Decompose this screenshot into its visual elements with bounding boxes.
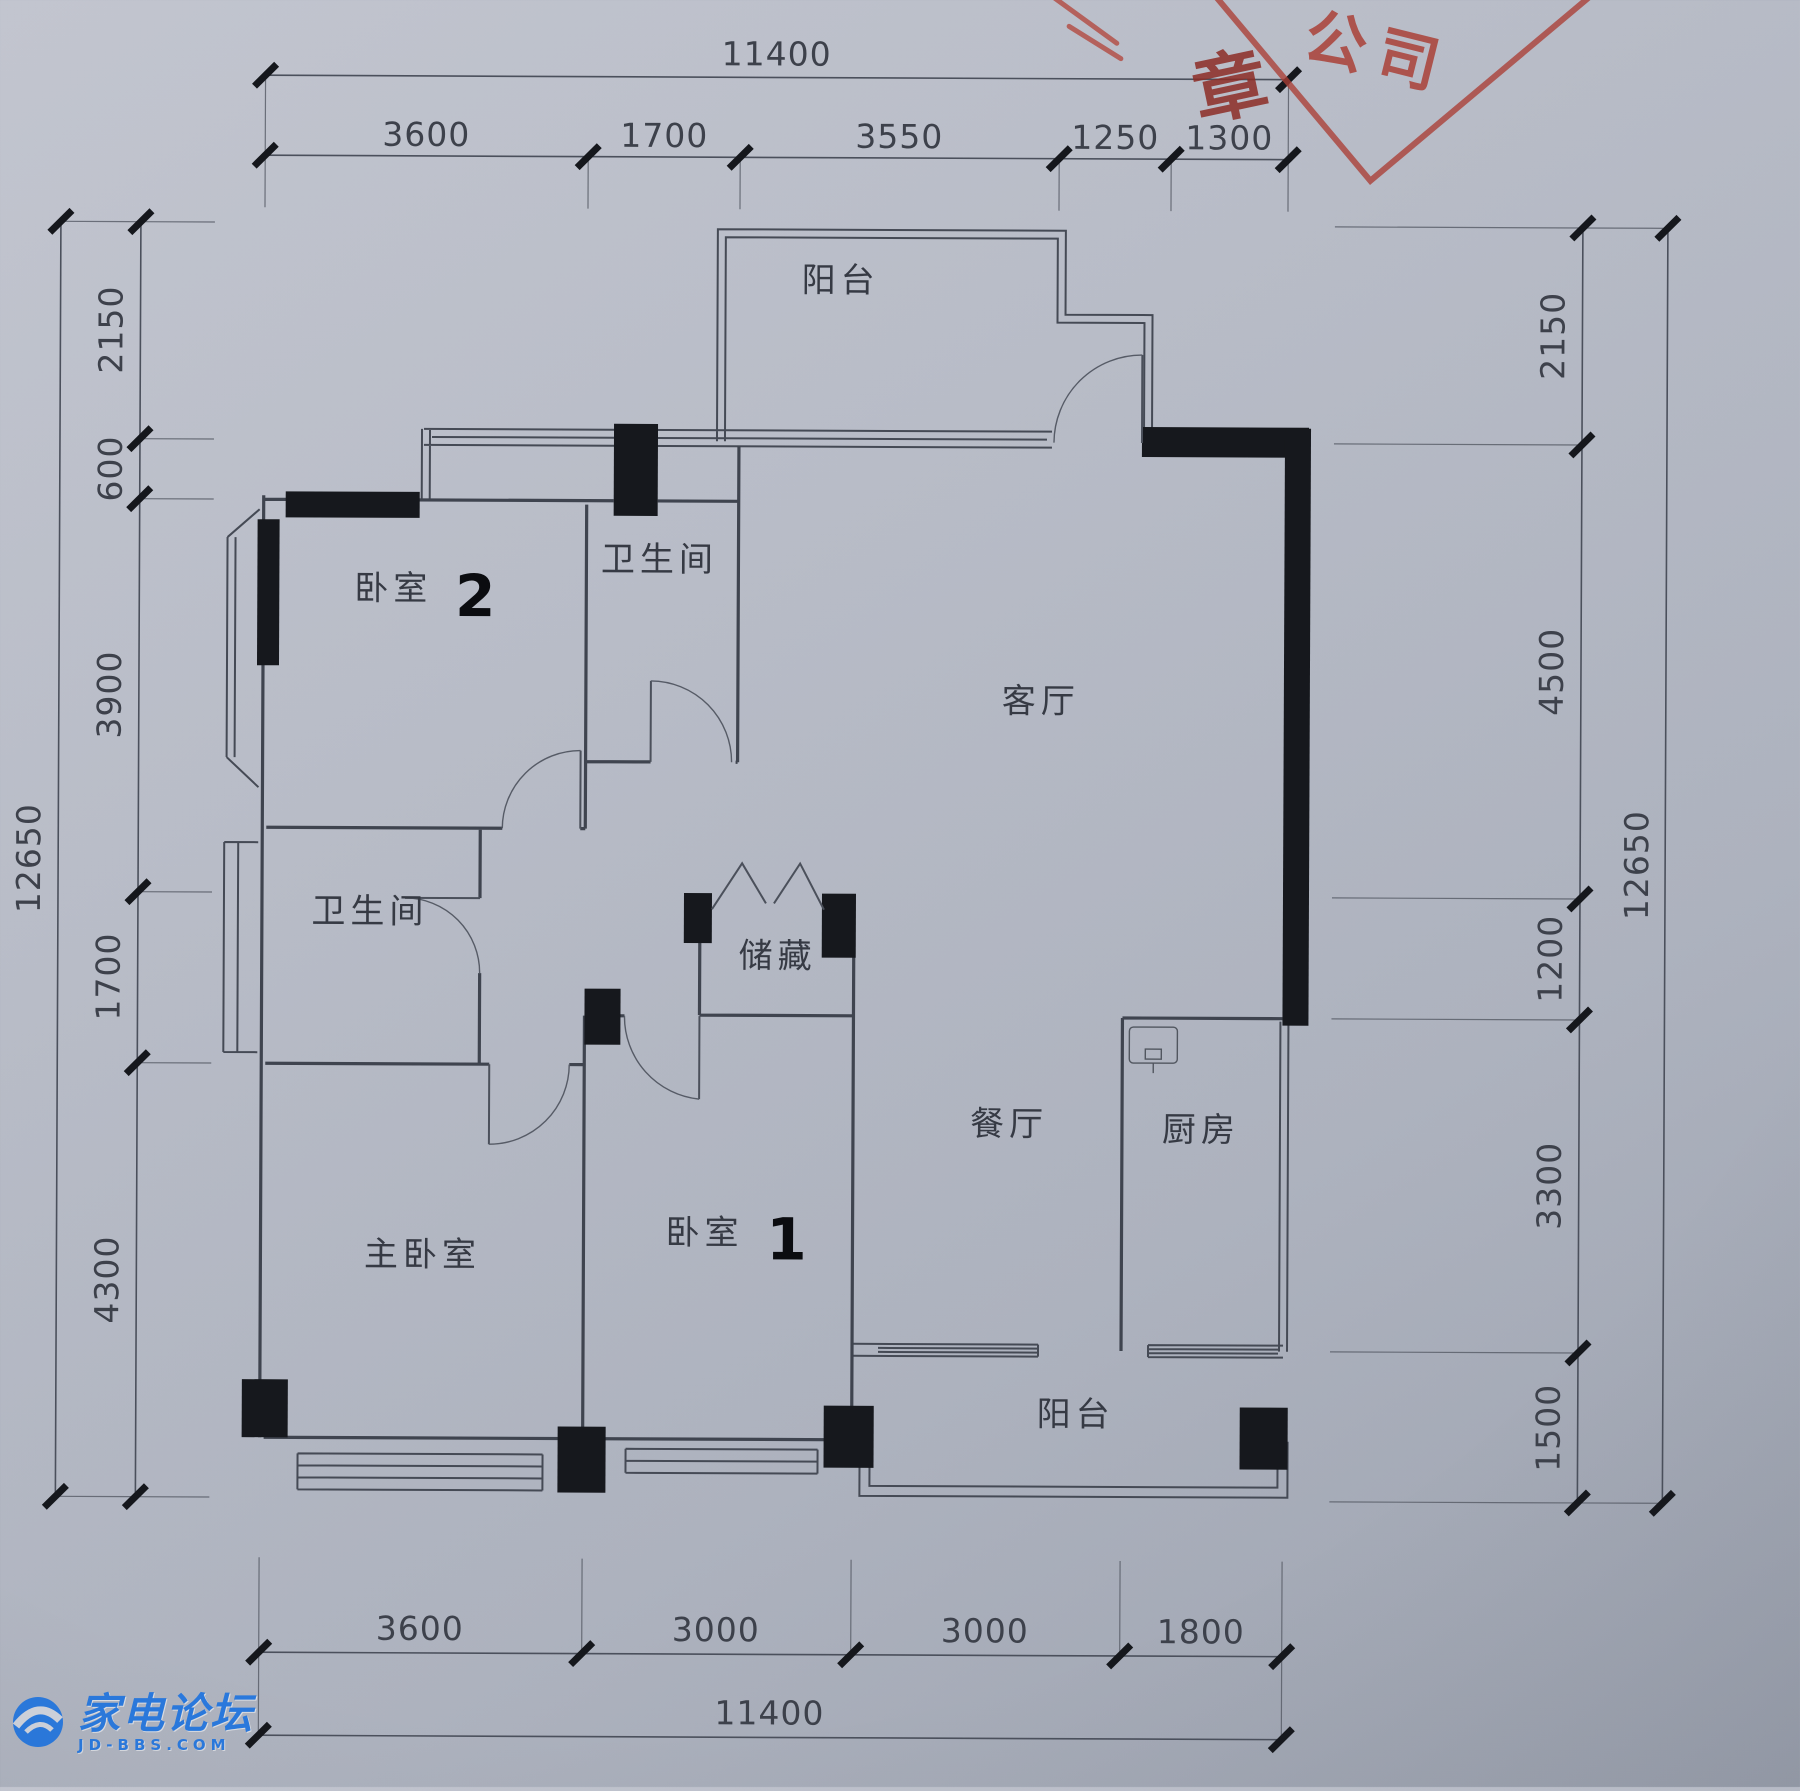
column-bedroom2-left bbox=[257, 519, 280, 665]
doors bbox=[404, 352, 1142, 1147]
stove-icon bbox=[1129, 1027, 1177, 1073]
dim-left-seg-3: 1700 bbox=[88, 932, 127, 1020]
dimension-lines bbox=[54, 74, 1668, 1741]
dim-top-seg-0: 3600 bbox=[382, 115, 470, 154]
dim-left-seg-0: 2150 bbox=[91, 285, 130, 373]
label-bedroom1: 卧室 bbox=[665, 1213, 743, 1253]
label-bath-lower: 卫生间 bbox=[311, 891, 428, 932]
watermark-logo-icon bbox=[8, 1692, 68, 1752]
label-living: 客厅 bbox=[1002, 681, 1080, 721]
dim-top-seg-2: 3550 bbox=[855, 117, 943, 156]
dim-left-total: 12650 bbox=[9, 803, 48, 913]
column-balcony-left bbox=[823, 1406, 873, 1468]
watermark-site: JD-BBS.COM bbox=[78, 1736, 254, 1754]
label-kitchen: 厨房 bbox=[1162, 1110, 1240, 1150]
label-bath-upper: 卫生间 bbox=[601, 540, 718, 581]
exterior-windows-balconies bbox=[221, 227, 1293, 1498]
annotation-bedroom1-number: 1 bbox=[766, 1205, 807, 1273]
watermark-title: 家电论坛 bbox=[78, 1692, 254, 1736]
column-master-sw bbox=[242, 1379, 288, 1437]
dim-left-seg-2: 3900 bbox=[90, 650, 129, 738]
dim-right-total: 12650 bbox=[1617, 810, 1656, 920]
label-balcony-top: 阳台 bbox=[802, 261, 880, 301]
dim-top-seg-1: 1700 bbox=[620, 116, 708, 155]
door-leaves bbox=[404, 352, 1142, 1147]
dim-right-seg-4: 1500 bbox=[1528, 1384, 1567, 1472]
label-dining: 餐厅 bbox=[970, 1104, 1048, 1144]
door-swings bbox=[404, 352, 1142, 1147]
column-hall bbox=[584, 989, 620, 1045]
dim-bottom-seg-2: 3000 bbox=[941, 1611, 1029, 1650]
wall-east bbox=[1282, 429, 1311, 1026]
column-master-se bbox=[557, 1427, 605, 1493]
dim-bottom-seg-3: 1800 bbox=[1157, 1612, 1245, 1651]
column-balcony-right bbox=[1239, 1407, 1287, 1469]
label-balcony-bottom: 阳台 bbox=[1037, 1395, 1115, 1435]
label-bedroom2: 卧室 bbox=[354, 569, 432, 609]
annotation-bedroom2-number: 2 bbox=[455, 562, 496, 630]
column-bedroom2-top bbox=[286, 491, 420, 518]
dim-left-seg-1: 600 bbox=[91, 435, 130, 501]
dim-right-seg-0: 2150 bbox=[1533, 292, 1572, 380]
column-north-mid bbox=[614, 424, 658, 516]
dim-bottom-total: 11400 bbox=[714, 1693, 824, 1732]
dim-bottom-seg-1: 3000 bbox=[672, 1610, 760, 1649]
label-storage: 储藏 bbox=[739, 936, 817, 976]
dim-right-seg-1: 4500 bbox=[1532, 628, 1571, 716]
dim-right-seg-2: 1200 bbox=[1531, 915, 1570, 1003]
floor-plan-photo: { "meta": { "kind": "apartment-floor-pla… bbox=[0, 0, 1800, 1787]
dim-left-seg-4: 4300 bbox=[87, 1235, 126, 1323]
label-master: 主卧室 bbox=[364, 1235, 481, 1276]
dim-right-seg-3: 3300 bbox=[1530, 1142, 1569, 1230]
column-storage-left bbox=[684, 893, 712, 943]
watermark: 家电论坛 JD-BBS.COM bbox=[8, 1692, 254, 1754]
floorplan-drawing: 阳台 卧室 2 卫生间 客厅 卫生间 储藏 餐厅 厨房 卧室 1 主卧室 阳台 … bbox=[0, 0, 1800, 1791]
room-labels: 阳台 卧室 2 卫生间 客厅 卫生间 储藏 餐厅 厨房 卧室 1 主卧室 阳台 bbox=[309, 258, 1244, 1435]
dim-top-total: 11400 bbox=[722, 34, 832, 73]
extension-lines bbox=[54, 74, 1668, 1741]
dim-top-seg-3: 1250 bbox=[1071, 118, 1159, 157]
folding-door-storage bbox=[712, 863, 824, 909]
column-storage-right bbox=[822, 894, 856, 958]
dim-bottom-seg-0: 3600 bbox=[376, 1609, 464, 1648]
wall-north-east bbox=[1142, 427, 1309, 458]
